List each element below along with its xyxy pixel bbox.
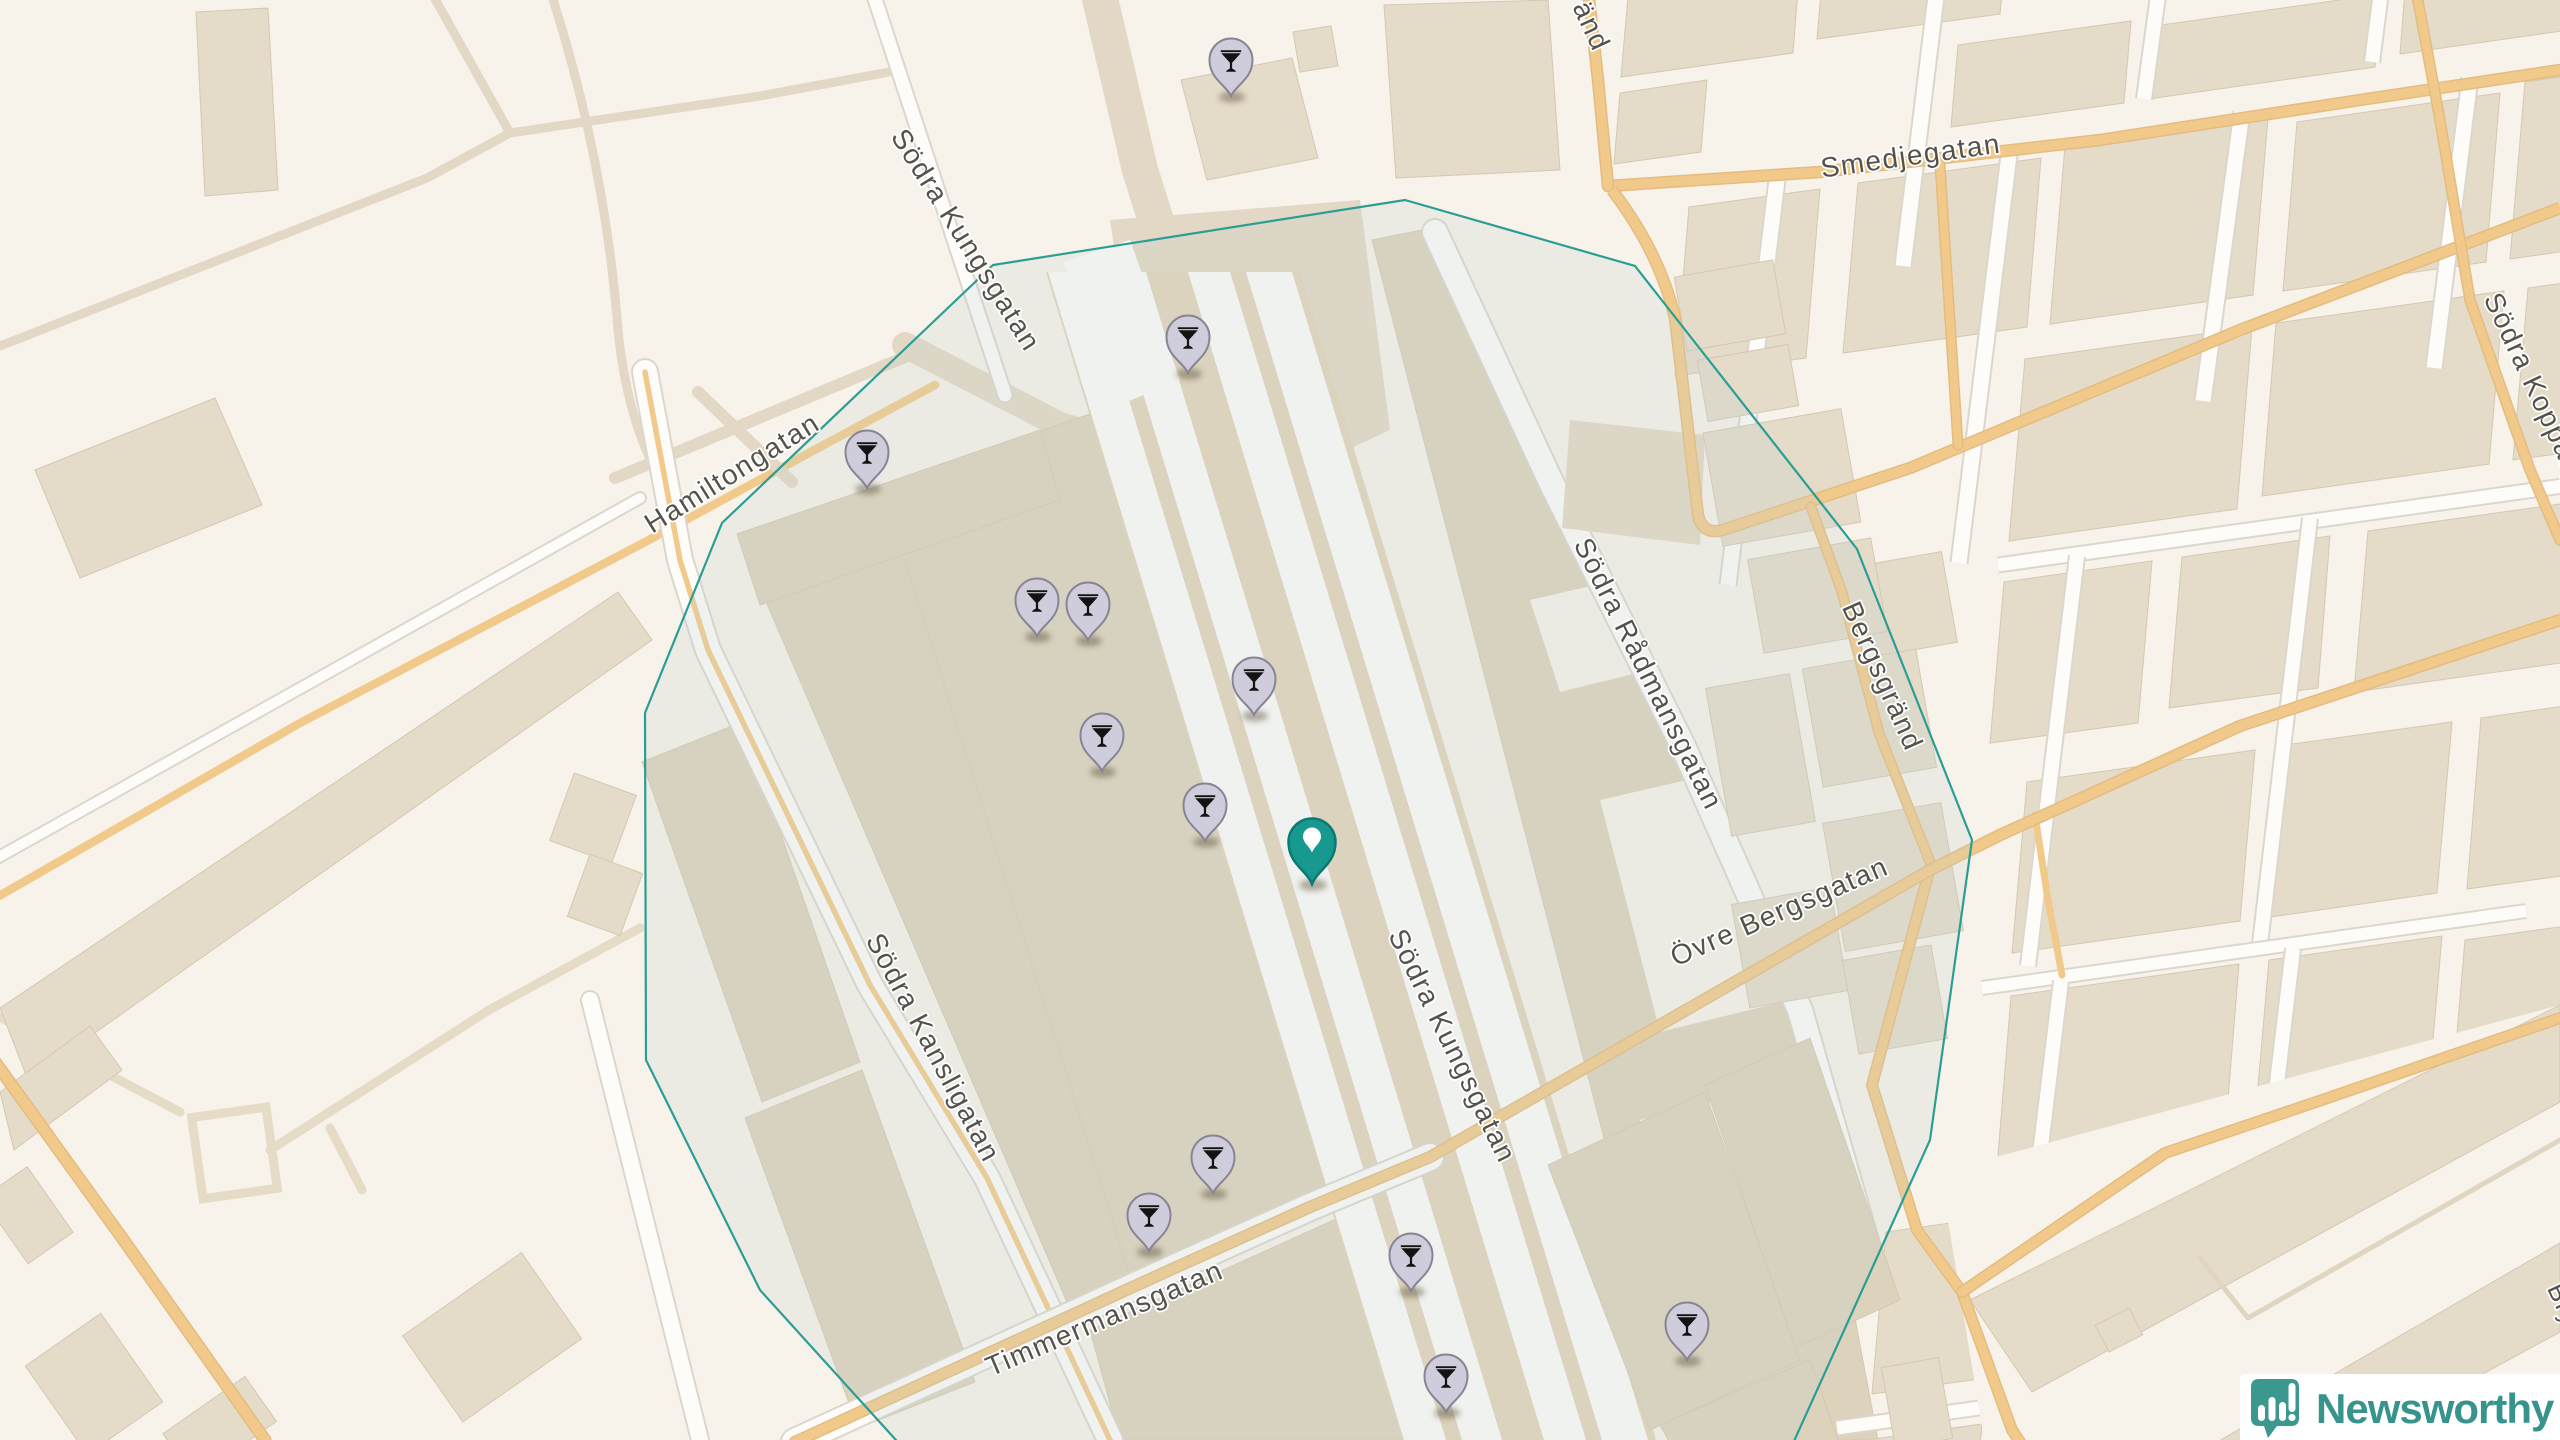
svg-text:Newsworthy: Newsworthy: [2316, 1385, 2555, 1432]
